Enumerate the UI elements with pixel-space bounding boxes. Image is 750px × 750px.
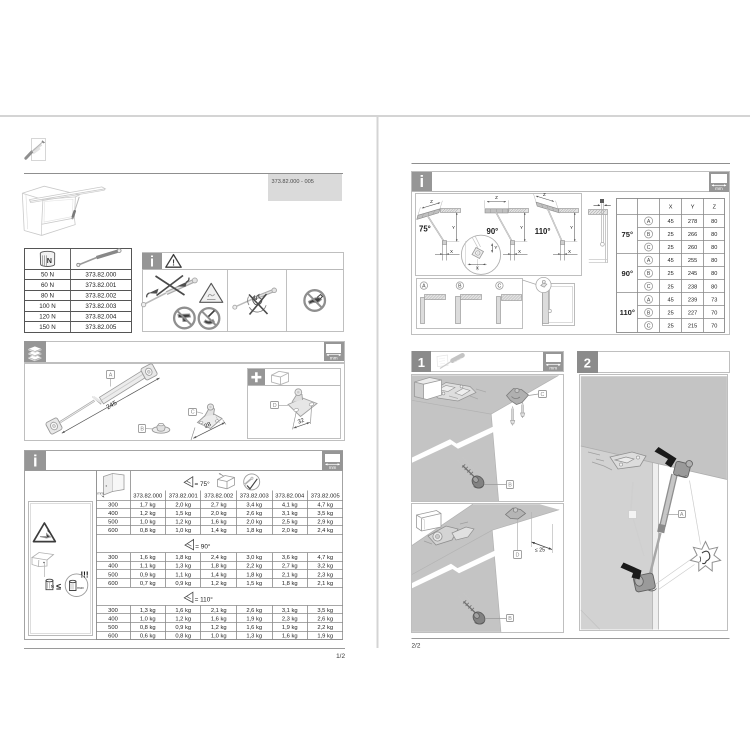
- svg-text:A: A: [647, 258, 651, 264]
- svg-text:i: i: [419, 173, 424, 191]
- svg-text:3,2 kg: 3,2 kg: [317, 564, 333, 570]
- svg-text:3,5 kg: 3,5 kg: [317, 608, 333, 614]
- svg-text:90°: 90°: [622, 269, 633, 278]
- svg-text:0,6 kg: 0,6 kg: [140, 634, 156, 640]
- svg-text:2,1 kg: 2,1 kg: [282, 572, 298, 578]
- svg-text:A: A: [647, 219, 651, 225]
- svg-text:N: N: [47, 256, 52, 265]
- svg-text:3,4 kg: 3,4 kg: [246, 502, 262, 508]
- svg-text:≤ 25: ≤ 25: [535, 548, 545, 554]
- svg-text:2,4 kg: 2,4 kg: [211, 555, 227, 561]
- svg-text:25: 25: [667, 271, 673, 277]
- svg-text:1,9 kg: 1,9 kg: [282, 625, 298, 631]
- svg-text:Z: Z: [713, 205, 717, 211]
- svg-text:2,6 kg: 2,6 kg: [246, 608, 262, 614]
- svg-text:2,1 kg: 2,1 kg: [211, 608, 227, 614]
- svg-text:300: 300: [108, 608, 118, 614]
- svg-text:B: B: [647, 271, 651, 277]
- svg-text:2,2 kg: 2,2 kg: [246, 564, 262, 570]
- svg-text:278: 278: [688, 219, 697, 225]
- svg-text:2,7 kg: 2,7 kg: [282, 564, 298, 570]
- svg-text:1,3 kg: 1,3 kg: [140, 608, 156, 614]
- svg-text:373.82.005: 373.82.005: [311, 494, 340, 500]
- svg-text:A: A: [647, 297, 651, 303]
- svg-text:500: 500: [108, 520, 118, 526]
- svg-text:239: 239: [688, 297, 697, 303]
- svg-text:500: 500: [108, 572, 118, 578]
- svg-text:1,6 kg: 1,6 kg: [282, 634, 298, 640]
- svg-text:373.82.001: 373.82.001: [169, 494, 198, 500]
- svg-text:600: 600: [108, 634, 118, 640]
- svg-text:215: 215: [688, 323, 697, 329]
- svg-text:150 N: 150 N: [39, 324, 56, 331]
- svg-text:Z: Z: [543, 192, 546, 197]
- svg-text:Y: Y: [691, 205, 695, 211]
- svg-text:2,3 kg: 2,3 kg: [317, 572, 333, 578]
- svg-text:45: 45: [667, 258, 673, 264]
- svg-text:373.82.000 - 005: 373.82.000 - 005: [272, 179, 314, 185]
- svg-text:0,8 kg: 0,8 kg: [175, 634, 191, 640]
- svg-text:1,6 kg: 1,6 kg: [211, 520, 227, 526]
- svg-text:3,1 kg: 3,1 kg: [282, 511, 298, 517]
- svg-text:1: 1: [418, 355, 425, 370]
- svg-text:1,0 kg: 1,0 kg: [175, 528, 191, 534]
- svg-text:0,8 kg: 0,8 kg: [140, 528, 156, 534]
- svg-text:227: 227: [688, 310, 697, 316]
- svg-text:75°: 75°: [419, 225, 431, 234]
- svg-text:4,1 kg: 4,1 kg: [282, 502, 298, 508]
- svg-text:400: 400: [108, 511, 118, 517]
- svg-text:D: D: [273, 403, 277, 409]
- svg-text:373.82.003: 373.82.003: [85, 303, 117, 310]
- svg-text:1,7 kg: 1,7 kg: [140, 502, 156, 508]
- svg-text:2,0 kg: 2,0 kg: [246, 520, 262, 526]
- svg-text:Z: Z: [430, 199, 433, 204]
- svg-text:50 N: 50 N: [41, 272, 54, 279]
- svg-text:= 90°: = 90°: [195, 543, 211, 551]
- svg-text:25: 25: [667, 310, 673, 316]
- svg-text:260: 260: [688, 245, 697, 251]
- svg-text:1,8 kg: 1,8 kg: [175, 555, 191, 561]
- svg-text:1,8 kg: 1,8 kg: [282, 581, 298, 587]
- svg-text:1,5 kg: 1,5 kg: [175, 511, 191, 517]
- svg-text:i: i: [33, 453, 38, 471]
- svg-text:373.82.004: 373.82.004: [275, 494, 305, 500]
- svg-text:1,6 kg: 1,6 kg: [175, 608, 191, 614]
- svg-text:1,6 kg: 1,6 kg: [246, 625, 262, 631]
- svg-text:373.82.000: 373.82.000: [133, 494, 162, 500]
- svg-text:Y: Y: [570, 225, 573, 230]
- svg-text:1,2 kg: 1,2 kg: [175, 520, 191, 526]
- svg-text:2,2 kg: 2,2 kg: [317, 625, 333, 631]
- svg-text:500: 500: [108, 625, 118, 631]
- svg-text:C: C: [498, 284, 502, 290]
- svg-text:245: 245: [688, 271, 697, 277]
- svg-text:i: i: [150, 255, 154, 271]
- svg-text:400: 400: [108, 564, 118, 570]
- svg-text:120 N: 120 N: [39, 314, 56, 321]
- svg-text:1,0 kg: 1,0 kg: [140, 616, 156, 622]
- svg-text:A: A: [680, 512, 684, 518]
- svg-text:80: 80: [711, 258, 717, 264]
- svg-text:!!!: !!!: [81, 571, 89, 580]
- svg-text:1,1 kg: 1,1 kg: [175, 572, 191, 578]
- svg-text:D: D: [516, 552, 520, 558]
- svg-text:255: 255: [688, 258, 697, 264]
- svg-text:1,8 kg: 1,8 kg: [246, 528, 262, 534]
- svg-text:600: 600: [108, 528, 118, 534]
- svg-text:70: 70: [711, 323, 717, 329]
- svg-text:1,2 kg: 1,2 kg: [175, 616, 191, 622]
- svg-text:= 75°: = 75°: [195, 480, 211, 488]
- svg-text:B: B: [647, 232, 651, 238]
- svg-text:70: 70: [711, 310, 717, 316]
- svg-text:75°: 75°: [622, 230, 633, 239]
- svg-text:80: 80: [711, 271, 717, 277]
- svg-text:373.82.005: 373.82.005: [85, 324, 117, 331]
- svg-text:2,0 kg: 2,0 kg: [211, 511, 227, 517]
- svg-text:B: B: [140, 427, 144, 433]
- svg-text:3,1 kg: 3,1 kg: [282, 608, 298, 614]
- svg-text:1,6 kg: 1,6 kg: [140, 555, 156, 561]
- svg-text:3,5 kg: 3,5 kg: [317, 511, 333, 517]
- svg-text:1,1 kg: 1,1 kg: [140, 564, 156, 570]
- svg-text:C: C: [647, 245, 651, 251]
- svg-text:300: 300: [108, 555, 118, 561]
- svg-text:1,0 kg: 1,0 kg: [211, 634, 227, 640]
- svg-text:1,4 kg: 1,4 kg: [211, 572, 227, 578]
- svg-text:4,7 kg: 4,7 kg: [317, 502, 333, 508]
- svg-text:X: X: [568, 249, 571, 254]
- svg-text:45: 45: [667, 219, 673, 225]
- svg-text:1,6 kg: 1,6 kg: [211, 616, 227, 622]
- svg-text:mm: mm: [549, 366, 557, 371]
- svg-text:45: 45: [667, 297, 673, 303]
- svg-text:600: 600: [108, 581, 118, 587]
- svg-text:A: A: [422, 284, 426, 290]
- svg-text:300: 300: [108, 502, 118, 508]
- svg-text:2,3 kg: 2,3 kg: [282, 616, 298, 622]
- svg-text:0,9 kg: 0,9 kg: [175, 581, 191, 587]
- svg-text:!: !: [172, 258, 175, 268]
- svg-text:0,9 kg: 0,9 kg: [175, 625, 191, 631]
- svg-text:C: C: [647, 284, 651, 290]
- svg-text:1,2 kg: 1,2 kg: [211, 625, 227, 631]
- svg-text:1,3 kg: 1,3 kg: [175, 564, 191, 570]
- svg-text:2: 2: [584, 356, 591, 371]
- svg-text:1,3 kg: 1,3 kg: [246, 634, 262, 640]
- svg-text:25: 25: [667, 284, 673, 290]
- svg-text:2,6 kg: 2,6 kg: [246, 511, 262, 517]
- svg-text:1,5 kg: 1,5 kg: [246, 581, 262, 587]
- svg-text:2,5 kg: 2,5 kg: [282, 520, 298, 526]
- svg-text:2,0 kg: 2,0 kg: [175, 502, 191, 508]
- svg-text:100 N: 100 N: [39, 303, 56, 310]
- svg-text:110°: 110°: [535, 227, 551, 236]
- svg-text:60 N: 60 N: [41, 282, 54, 289]
- svg-text:373.82.002: 373.82.002: [204, 494, 233, 500]
- svg-text:266: 266: [688, 232, 697, 238]
- svg-text:C: C: [540, 392, 544, 398]
- svg-text:373.82.002: 373.82.002: [85, 293, 117, 300]
- svg-text:3,0 kg: 3,0 kg: [246, 555, 262, 561]
- svg-text:mm: mm: [330, 356, 338, 361]
- svg-text:mm: mm: [97, 491, 104, 496]
- svg-text:2/2: 2/2: [412, 642, 421, 649]
- svg-text:3,6 kg: 3,6 kg: [282, 555, 298, 561]
- svg-text:2,4 kg: 2,4 kg: [317, 528, 333, 534]
- svg-text:373.82.000: 373.82.000: [85, 272, 117, 279]
- svg-text:X: X: [518, 249, 521, 254]
- svg-text:mm: mm: [715, 186, 723, 191]
- svg-text:X: X: [450, 249, 453, 254]
- svg-text:1/2: 1/2: [336, 653, 345, 660]
- svg-text:Y: Y: [520, 225, 523, 230]
- svg-text:80: 80: [711, 284, 717, 290]
- svg-text:373.82.001: 373.82.001: [85, 282, 117, 289]
- svg-text:80: 80: [711, 232, 717, 238]
- svg-text:B: B: [508, 483, 512, 489]
- svg-text:1,8 kg: 1,8 kg: [211, 564, 227, 570]
- svg-text:B: B: [647, 310, 651, 316]
- svg-text:max: max: [77, 586, 84, 590]
- svg-text:2,1 kg: 2,1 kg: [317, 581, 333, 587]
- svg-text:25: 25: [667, 232, 673, 238]
- svg-text:2,7 kg: 2,7 kg: [211, 502, 227, 508]
- svg-text:25: 25: [667, 245, 673, 251]
- svg-text:N: N: [51, 584, 54, 589]
- svg-text:80: 80: [711, 219, 717, 225]
- svg-text:4,7 kg: 4,7 kg: [317, 555, 333, 561]
- svg-text:B: B: [458, 284, 462, 290]
- svg-text:= 110°: = 110°: [195, 595, 214, 603]
- svg-text:A: A: [109, 373, 113, 379]
- svg-text:mm: mm: [329, 465, 337, 470]
- svg-text:1,8 kg: 1,8 kg: [246, 572, 262, 578]
- svg-text:238: 238: [688, 284, 697, 290]
- svg-text:2,6 kg: 2,6 kg: [317, 616, 333, 622]
- svg-text:90°: 90°: [487, 227, 499, 236]
- svg-text:Y: Y: [452, 225, 455, 230]
- svg-text:80: 80: [711, 245, 717, 251]
- svg-text:2,9 kg: 2,9 kg: [317, 520, 333, 526]
- svg-text:0,8 kg: 0,8 kg: [140, 625, 156, 631]
- svg-text:Z: Z: [495, 195, 498, 200]
- svg-text:1,4 kg: 1,4 kg: [211, 528, 227, 534]
- svg-text:73: 73: [711, 297, 717, 303]
- svg-text:1,2 kg: 1,2 kg: [211, 581, 227, 587]
- svg-text:110°: 110°: [620, 308, 635, 317]
- svg-text:25: 25: [667, 323, 673, 329]
- svg-text:1,9 kg: 1,9 kg: [246, 616, 262, 622]
- svg-text:373.82.004: 373.82.004: [85, 314, 117, 321]
- svg-text:0,9 kg: 0,9 kg: [140, 572, 156, 578]
- svg-text:≤: ≤: [56, 582, 61, 592]
- svg-text:1,0 kg: 1,0 kg: [140, 520, 156, 526]
- svg-text:0,7 kg: 0,7 kg: [140, 581, 156, 587]
- svg-text:C: C: [647, 323, 651, 329]
- svg-text:B: B: [508, 616, 512, 622]
- svg-text:2,0 kg: 2,0 kg: [282, 528, 298, 534]
- svg-text:1,9 kg: 1,9 kg: [317, 634, 333, 640]
- svg-text:80 N: 80 N: [41, 293, 54, 300]
- svg-text:X: X: [669, 205, 673, 211]
- svg-text:373.82.003: 373.82.003: [240, 494, 269, 500]
- svg-text:400: 400: [108, 616, 118, 622]
- svg-text:1,2 kg: 1,2 kg: [140, 511, 156, 517]
- svg-text:C: C: [191, 410, 195, 416]
